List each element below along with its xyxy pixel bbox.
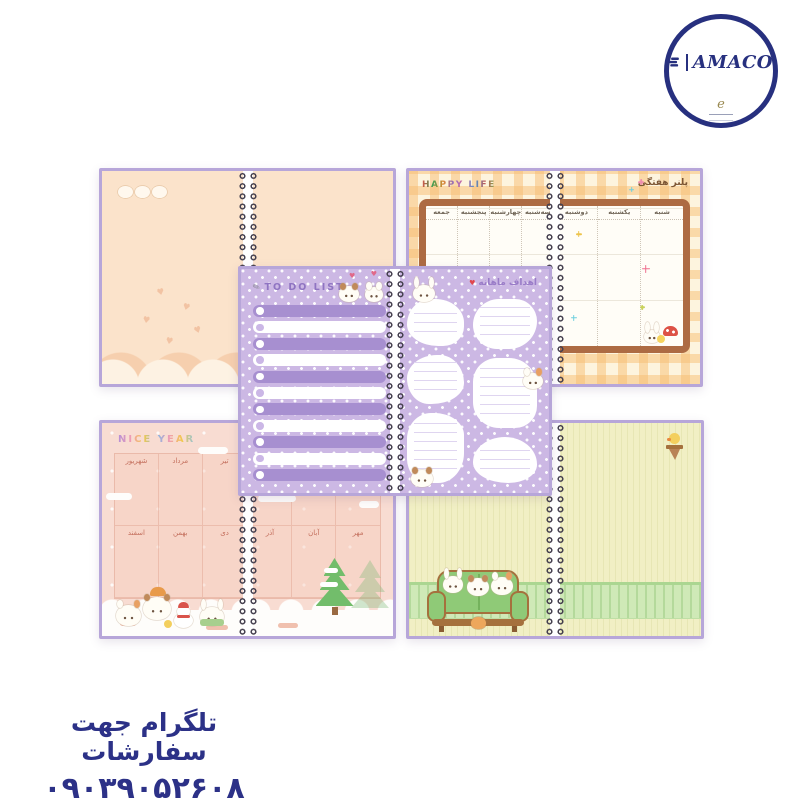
month-label: بهمن — [159, 526, 202, 537]
lined-right-page — [555, 423, 701, 636]
snow-cap — [359, 501, 379, 508]
bunny-mushroom-scene — [644, 321, 678, 343]
logo-divider — [686, 54, 687, 71]
month-cell: شهریور — [115, 454, 159, 526]
snow-cap — [198, 447, 228, 454]
contact-block: تلگرام جهت سفارشات ۰۹۰۳۹۰۵۲۶۰۸ — [8, 708, 280, 806]
product-photo-canvas: AMACO e HAPPY LIFE — [0, 0, 800, 800]
month-label: اسفند — [115, 526, 158, 537]
couch-scene — [429, 570, 527, 628]
weekday-label: پنجشنبه — [458, 206, 489, 220]
tree-snow — [324, 568, 338, 573]
tree-layer — [316, 584, 354, 606]
todo-row — [253, 305, 386, 317]
couch-armrest — [427, 591, 446, 622]
snowman-red-scarf — [177, 615, 190, 618]
tree-snow — [320, 582, 338, 587]
year-left-page: NICE YEAR شهریور مرداد تیر اسفند بهمن دی — [102, 423, 248, 636]
winter-characters-group — [116, 562, 232, 628]
bunny-character — [413, 285, 435, 302]
shelf-bracket — [669, 449, 680, 460]
bunny-character — [200, 607, 224, 626]
phone-number: ۰۹۰۳۹۰۵۲۶۰۸ — [8, 771, 280, 806]
weekly-planner-fa-title: پلنر هفتگی — [638, 178, 688, 188]
couch-leg — [439, 626, 444, 632]
pencil-icon: ✎ — [252, 282, 263, 294]
heart-confetti-icon — [142, 315, 150, 323]
todo-row — [253, 321, 386, 333]
spiral-binding — [386, 269, 404, 493]
sparkle-icon — [571, 315, 577, 321]
sparkle-icon — [640, 305, 645, 310]
todo-page: ✎ TO DO LIST ♥ ♥ — [241, 269, 395, 493]
bunny-head-icon — [118, 186, 133, 198]
weekday-column: یکشنبه — [597, 206, 640, 346]
todo-row — [253, 387, 386, 399]
sparkle-icon — [638, 179, 644, 185]
shelf-board — [666, 445, 683, 449]
nice-year-title: NICE YEAR — [118, 434, 195, 445]
todo-header: ✎ TO DO LIST — [253, 282, 345, 293]
wall-shelf-duck — [665, 433, 685, 469]
goal-boxes — [407, 299, 537, 483]
cat-character — [116, 605, 141, 626]
logo-row: AMACO — [669, 52, 773, 73]
todo-row — [253, 338, 386, 350]
todo-row — [253, 354, 386, 366]
dog-chick-characters: ♥ ♥ — [339, 275, 385, 302]
dog-character — [467, 578, 489, 596]
month-label: مهر — [336, 526, 380, 537]
heart-icon: ♥ — [469, 279, 475, 287]
weekday-label: شنبه — [641, 206, 683, 220]
pine-tree-faint — [353, 560, 387, 604]
snowman-character — [174, 600, 193, 628]
telegram-orders-label: تلگرام جهت سفارشات — [8, 708, 280, 766]
couch-leg — [512, 626, 517, 632]
todo-row — [253, 371, 386, 383]
snowman-red-hat — [178, 602, 189, 608]
goal-box — [473, 437, 537, 483]
cloud-scallops-front — [102, 352, 248, 384]
happy-life-title: HAPPY LIFE — [422, 180, 496, 190]
green-fence-band — [555, 582, 701, 619]
todo-row — [253, 436, 386, 448]
heart-icon: ♥ — [371, 271, 377, 278]
todo-row — [253, 453, 386, 465]
dog-character — [411, 470, 433, 487]
sparkle-icon — [576, 231, 582, 237]
dog-head-icon — [135, 186, 150, 198]
weekday-label: جمعه — [426, 206, 457, 220]
chick-icon — [657, 335, 665, 343]
heart-confetti-icon — [183, 302, 192, 311]
sparkle-icon — [642, 265, 650, 273]
duckling-icon — [164, 620, 172, 628]
month-label: شهریور — [115, 454, 158, 465]
mushroom-icon — [663, 326, 678, 336]
e-signature-mark: e — [669, 93, 773, 121]
todo-title: TO DO LIST — [265, 282, 345, 293]
sparkle-icon — [629, 187, 634, 192]
snow-cap — [258, 495, 296, 502]
weekly-grid-frame-right: دوشنبه یکشنبه شنبه — [555, 199, 691, 353]
todo-row — [253, 420, 386, 432]
weekday-label: چهارشنبه — [490, 206, 521, 220]
couch-armrest — [510, 591, 529, 622]
e-signature-glyph: e — [717, 97, 725, 112]
duck-icon — [669, 433, 680, 444]
monthly-goals-page: اهداف ماهانه ♥ — [395, 269, 549, 493]
chick-character — [365, 287, 383, 302]
weekly-right-page: پلنر هفتگی دوشنبه یکشنبه شنبه — [555, 171, 701, 384]
todo-rows — [253, 305, 386, 481]
cat-character — [491, 577, 513, 595]
cat-character — [523, 373, 543, 389]
book-stack-icon — [669, 53, 681, 72]
orange-kitten-character — [471, 617, 486, 629]
green-blanket — [200, 619, 224, 626]
todo-row — [253, 469, 386, 481]
heart-confetti-icon — [157, 287, 165, 295]
month-label: آبان — [292, 526, 335, 537]
snow-ground — [248, 610, 394, 636]
bunny-dog-cat-characters — [118, 186, 167, 198]
goal-box — [407, 355, 464, 404]
bunny-character — [443, 576, 463, 593]
month-label: مرداد — [159, 454, 202, 465]
month-cell: مرداد — [159, 454, 203, 526]
heart-confetti-icon — [193, 326, 202, 335]
pine-tree — [316, 558, 354, 608]
amaco-logo-badge: AMACO e — [664, 14, 778, 128]
cat-head-icon — [152, 186, 167, 198]
notebook-spread-todo-goals: ✎ TO DO LIST ♥ ♥ — [238, 266, 552, 496]
goal-column-left — [407, 299, 464, 483]
snow-cap — [106, 493, 132, 500]
weekday-label: یکشنبه — [598, 206, 640, 220]
orange-hat-icon — [150, 587, 166, 596]
notes-left-page — [102, 171, 248, 384]
monthly-goals-title: اهداف ماهانه — [478, 278, 537, 288]
goal-column-right — [473, 299, 537, 483]
goal-box — [407, 299, 464, 346]
tree-trunk — [332, 607, 338, 615]
dog-character — [143, 597, 171, 620]
goal-box — [473, 299, 537, 349]
todo-row — [253, 403, 386, 415]
brand-name: AMACO — [693, 52, 773, 73]
heart-icon: ♥ — [349, 273, 355, 280]
monthly-goals-header: اهداف ماهانه ♥ — [469, 278, 537, 288]
footprint-trail — [278, 623, 298, 628]
signature-caption-lines — [709, 114, 733, 121]
dog-character — [339, 286, 359, 302]
